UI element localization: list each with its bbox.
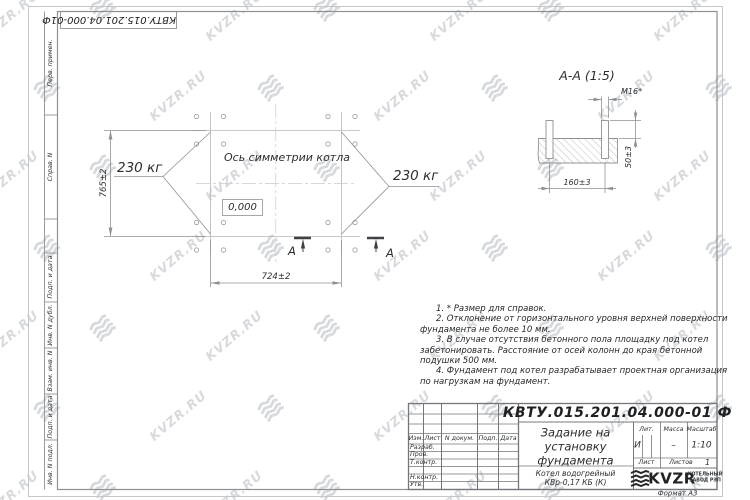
- drawing-linework: [0, 0, 750, 500]
- side-stamp-podp-data-1: Подп. и дата: [48, 256, 54, 299]
- row-utv: Утв.: [410, 482, 423, 488]
- plan-width-dim-label: 724±2: [262, 273, 291, 282]
- col-podp: Подп.: [478, 435, 497, 441]
- product-name-line-1: Котел водогрейный: [536, 470, 616, 478]
- side-stamp-inv-dubl: Инв. N дубл.: [48, 304, 54, 345]
- side-stamp-vzam-inv: Взам. инв. N: [48, 351, 54, 392]
- product-name-line-2: КВр-0,17 КБ (К): [545, 479, 607, 487]
- org-desc-line-1: КОТЕЛЬНЫЙ: [687, 473, 722, 478]
- doc-title-line-3: фундамента: [537, 455, 613, 467]
- lit-value: И: [634, 442, 641, 451]
- section-spacing-dim-label: 160±3: [563, 179, 590, 187]
- col-n-dokum: N докум.: [445, 435, 474, 441]
- scale-label: Масштаб: [687, 426, 717, 432]
- row-nkontr: Н.контр.: [410, 475, 438, 481]
- note-4: 4. Фундамент под котел разрабатывает про…: [420, 366, 732, 387]
- col-izm: Изм.: [409, 435, 424, 441]
- note-1: 1. * Размер для справок.: [420, 304, 732, 314]
- plan-load-leaders: [114, 132, 439, 234]
- note-2: 2. Отклонение от горизонтального уровня …: [420, 314, 732, 335]
- drawing-sheet: KVZR.RUKVZR.RUKVZR.RUKVZR.RUKVZR.RUKVZR.…: [0, 0, 750, 500]
- note-3: 3. В случае отсутствия бетонного пола пл…: [420, 335, 732, 366]
- row-razrab: Разраб.: [410, 445, 435, 451]
- plan-symmetry-axis-label: Ось симметрии котла: [224, 152, 350, 163]
- doc-title-line-2: установку: [545, 441, 607, 453]
- side-stamp-sprav-n: Справ. N: [48, 153, 54, 182]
- plan-centerlines: [196, 104, 356, 262]
- plan-dimension-765: [104, 131, 206, 237]
- org-desc-line-2: ЗАВОД РЭП: [689, 480, 721, 485]
- doc-title-line-1: Задание на: [541, 427, 611, 439]
- sheet-label: Лист: [639, 460, 655, 466]
- col-list: Лист: [425, 435, 441, 441]
- section-letter-right: А: [386, 248, 394, 260]
- sheets-value: 1: [705, 459, 710, 467]
- plan-height-dim-label: 765±2: [100, 169, 109, 198]
- plan-load-left-label: 230 кг: [117, 162, 162, 176]
- col-data: Дата: [500, 435, 516, 441]
- section-letter-left: А: [288, 246, 296, 258]
- section-dim-m16: [588, 97, 622, 119]
- plan-load-right-label: 230 кг: [393, 170, 438, 184]
- row-tkontr: Т.контр.: [410, 460, 437, 466]
- drawing-notes: 1. * Размер для справок. 2. Отклонение о…: [420, 304, 732, 387]
- titleblock-designation: КВТУ.015.201.04.000-01 Ф: [503, 406, 732, 420]
- section-title: А-А (1:5): [559, 70, 614, 83]
- scale-value: 1:10: [691, 442, 711, 451]
- row-prov: Пров.: [410, 452, 428, 458]
- side-stamp-podp-data-2: Подп. и дата: [48, 396, 54, 439]
- top-designation-label: КВТУ.015.201.04.000-01Ф: [60, 11, 176, 28]
- section-thread-label: М16*: [621, 88, 642, 96]
- section-height-dim-label: 50±3: [625, 146, 633, 168]
- mass-value: –: [671, 442, 676, 451]
- anchor-bolt-left: [546, 121, 553, 159]
- side-stamp-perv-primen: Перв. примен.: [48, 39, 54, 86]
- format-label: Формат А3: [658, 490, 698, 497]
- sheets-label: Листов: [669, 460, 693, 466]
- anchor-bolt-right: [602, 121, 609, 159]
- mass-label: Масса: [663, 426, 683, 432]
- side-stamp-inv-podl: Инв. N подл.: [48, 443, 54, 485]
- plan-level-mark: 0,000: [222, 203, 263, 213]
- lit-label: Лит.: [639, 426, 654, 432]
- section-cut-marks: [294, 238, 384, 252]
- kvzr-logo-icon: [630, 470, 650, 487]
